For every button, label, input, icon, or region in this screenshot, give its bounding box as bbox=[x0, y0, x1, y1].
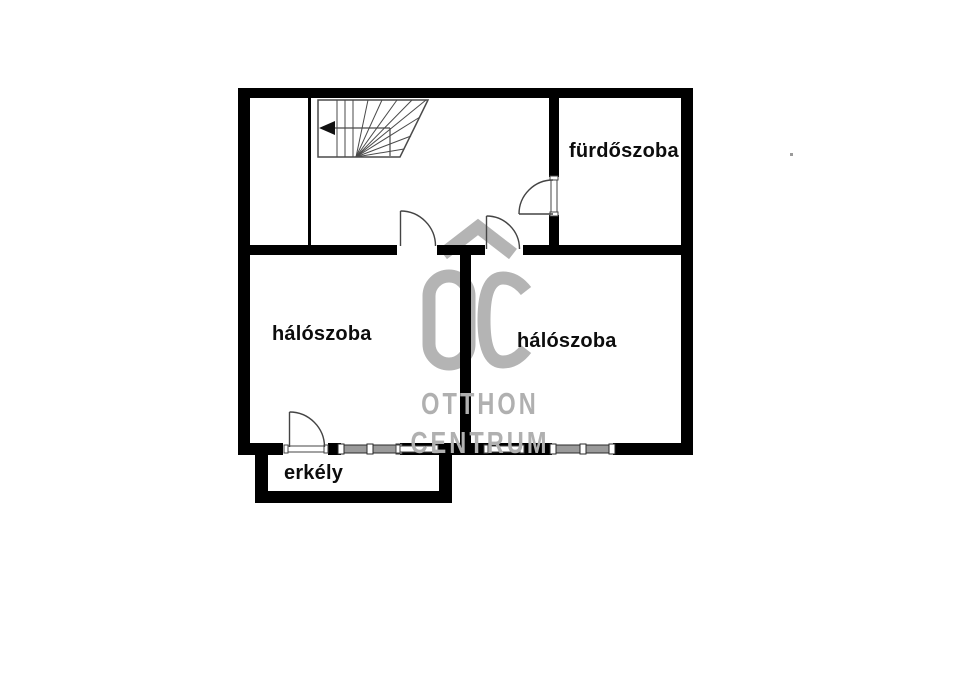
watermark-text-centrum: CENTRUM bbox=[396, 425, 563, 461]
stair-direction-arrow-icon bbox=[319, 121, 335, 135]
room-label-bedroom-left: hálószoba bbox=[272, 323, 372, 346]
bedroom-left-door bbox=[401, 211, 436, 246]
wall-bottom-a bbox=[238, 443, 283, 455]
wall-balcony-bottom bbox=[255, 491, 452, 503]
room-label-bedroom-right: hálószoba bbox=[517, 330, 617, 353]
watermark-text-otthon: OTTHON bbox=[396, 386, 563, 422]
speck-artifact bbox=[790, 153, 793, 156]
room-label-balcony: erkély bbox=[284, 462, 343, 485]
wall-balcony-right bbox=[439, 455, 452, 503]
wall-top bbox=[238, 88, 693, 98]
wall-bathroom-upper bbox=[549, 98, 559, 177]
wall-thin-partition bbox=[308, 98, 311, 245]
floorplan-drawing bbox=[0, 0, 960, 679]
wall-hall-c bbox=[523, 245, 693, 255]
balcony-door-threshold bbox=[284, 445, 328, 453]
room-label-bathroom: fürdőszoba bbox=[569, 140, 679, 163]
floorplan-canvas: OTTHON CENTRUM fürdőszoba hálószoba háló… bbox=[0, 0, 960, 679]
wall-bathroom-lower bbox=[549, 215, 559, 255]
staircase bbox=[318, 100, 428, 157]
wall-left bbox=[238, 88, 250, 455]
balcony-door bbox=[290, 412, 325, 447]
wall-bottom-d bbox=[613, 443, 693, 455]
bedroom-left-window bbox=[338, 444, 402, 454]
bathroom-door-threshold bbox=[550, 176, 558, 216]
bathroom-door bbox=[519, 180, 553, 214]
wall-hall-a bbox=[238, 245, 397, 255]
wall-right bbox=[681, 88, 693, 455]
